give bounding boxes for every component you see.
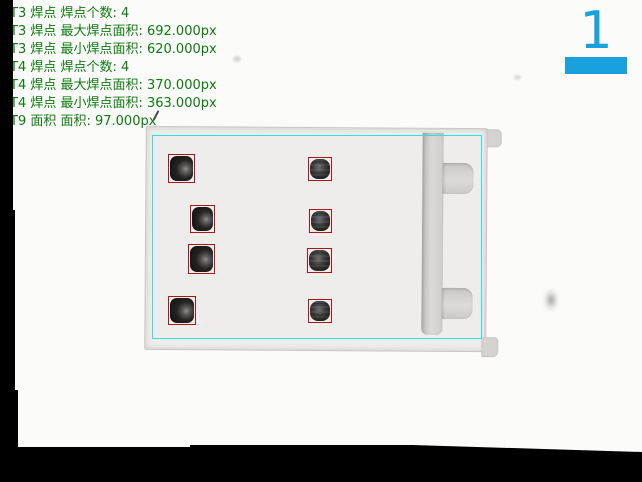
result-line: T3 焊点 最大焊点面积: 692.000px [10, 23, 217, 41]
solder-joint-blob [309, 250, 330, 271]
solder-joint-blob [170, 156, 193, 181]
detection-box [308, 157, 332, 181]
solder-joint-blob [192, 207, 213, 231]
step-underline-bar [565, 57, 627, 74]
solder-joint-blob [170, 298, 194, 323]
results-panel: T3 焊点 焊点个数: 4 T3 焊点 最大焊点面积: 692.000px T3… [10, 5, 217, 131]
part-tab-bottom [481, 337, 498, 357]
detection-box [308, 299, 332, 323]
detection-box [309, 209, 332, 233]
result-line: T4 焊点 焊点个数: 4 [10, 59, 217, 77]
detection-box [190, 205, 215, 233]
result-line: T4 焊点 最大焊点面积: 370.000px [10, 77, 217, 95]
step-number: 1 [563, 6, 629, 56]
dust-smudge [233, 56, 241, 62]
solder-joint-blob [190, 246, 213, 272]
detection-box [188, 244, 215, 274]
result-line: T3 焊点 最小焊点面积: 620.000px [10, 41, 217, 59]
result-line: T3 焊点 焊点个数: 4 [10, 5, 217, 23]
detection-box [168, 296, 196, 325]
step-indicator[interactable]: 1 [563, 6, 629, 76]
detection-box [168, 154, 195, 183]
part-tab-top [487, 129, 502, 147]
result-line: T9 面积 面积: 97.000px [10, 113, 217, 131]
dust-smudge [543, 288, 559, 312]
solder-joint-blob [310, 301, 330, 321]
dust-smudge [514, 75, 521, 80]
camera-image[interactable]: T3 焊点 焊点个数: 4 T3 焊点 最大焊点面积: 692.000px T3… [0, 0, 642, 482]
solder-joint-blob [310, 159, 330, 179]
result-line: T4 焊点 最小焊点面积: 363.000px [10, 95, 217, 113]
solder-joint-blob [311, 211, 330, 231]
detection-box [307, 248, 332, 273]
